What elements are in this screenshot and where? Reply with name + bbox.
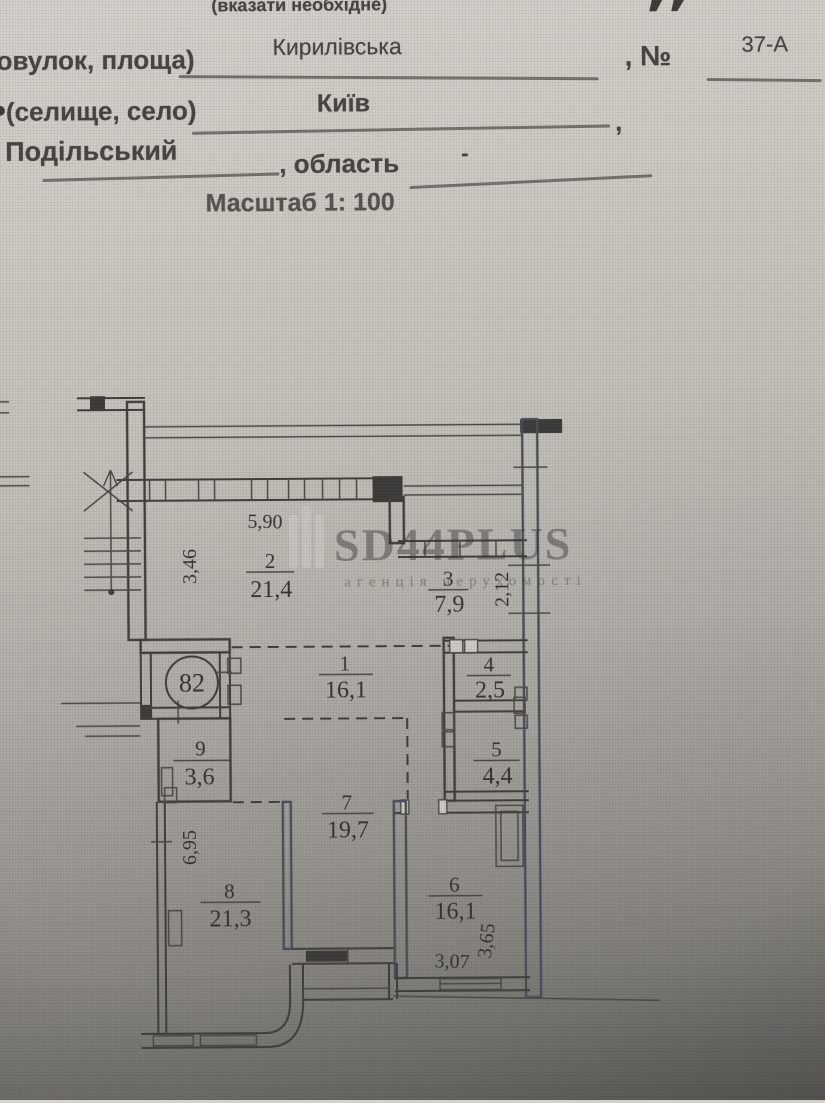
room-label-4: 4 2,5 [467, 652, 511, 703]
room-label-8: 8 21,3 [200, 879, 260, 932]
svg-text:2,5: 2,5 [475, 677, 505, 703]
cut-letter-dot [0, 106, 5, 116]
city-value: Київ [317, 89, 370, 118]
svg-text:4,4: 4,4 [482, 763, 512, 789]
svg-text:9: 9 [195, 736, 206, 760]
watermark: SD44PLUS агенція нерухомості [289, 504, 587, 591]
room-label-7: 7 19,7 [322, 790, 374, 843]
street-value: Кирилівська [272, 33, 401, 61]
svg-text:21,3: 21,3 [209, 906, 251, 932]
city-separator: , [615, 107, 622, 138]
svg-text:7: 7 [341, 790, 352, 814]
room-label-9: 9 3,6 [173, 736, 229, 790]
apartment-number-badge: 82 [166, 656, 218, 708]
photographed-document: 82 SD44PLUS агенція нерухомості 1 16,1 2… [0, 0, 825, 1103]
dimension-room6-height: 3,65 [474, 922, 500, 959]
svg-text:19,7: 19,7 [327, 817, 369, 843]
staircase-symbol [83, 470, 141, 595]
room-label-6: 6 16,1 [428, 873, 482, 925]
room-label-5: 5 4,4 [473, 737, 519, 789]
svg-text:5: 5 [491, 737, 502, 761]
svg-text:21,4: 21,4 [250, 577, 292, 603]
scale-label: Масштаб 1: 100 [205, 188, 394, 218]
street-label: овулок, площа) [0, 45, 195, 77]
watermark-title: SD44PLUS [334, 518, 573, 571]
svg-text:8: 8 [224, 879, 235, 903]
svg-text:1: 1 [339, 651, 350, 675]
watermark-subtitle: агенція нерухомості [344, 573, 587, 591]
house-number-label: , № [624, 40, 671, 72]
cut-text-fragment [649, 0, 685, 11]
svg-text:3,6: 3,6 [184, 764, 214, 790]
dimension-room2-width: 5,90 [247, 511, 282, 534]
bars-icon [289, 506, 324, 569]
form-note: (вказати необхідне) [179, 0, 419, 17]
district-value: Подільський [5, 136, 177, 168]
svg-text:16,1: 16,1 [434, 899, 476, 925]
svg-text:2: 2 [265, 549, 276, 573]
svg-text:16,1: 16,1 [325, 677, 367, 703]
room-label-2: 2 21,4 [246, 549, 294, 603]
oblast-value: - [461, 141, 469, 167]
apartment-number: 82 [179, 668, 205, 697]
svg-text:3: 3 [443, 567, 454, 591]
room-label-1: 1 16,1 [319, 651, 373, 703]
dimension-room3-height: 2,12 [491, 572, 513, 607]
city-label: (селище, село) [6, 95, 197, 127]
house-number-value: 37-А [741, 31, 788, 57]
dimension-room8-height: 6,95 [179, 830, 201, 865]
oblast-label: , область [279, 148, 399, 180]
dimension-room6-width: 3,07 [434, 950, 470, 973]
svg-text:7,9: 7,9 [434, 592, 464, 618]
svg-text:6: 6 [449, 873, 460, 897]
dimension-room2-height: 3,46 [179, 549, 201, 584]
svg-text:4: 4 [483, 652, 494, 676]
